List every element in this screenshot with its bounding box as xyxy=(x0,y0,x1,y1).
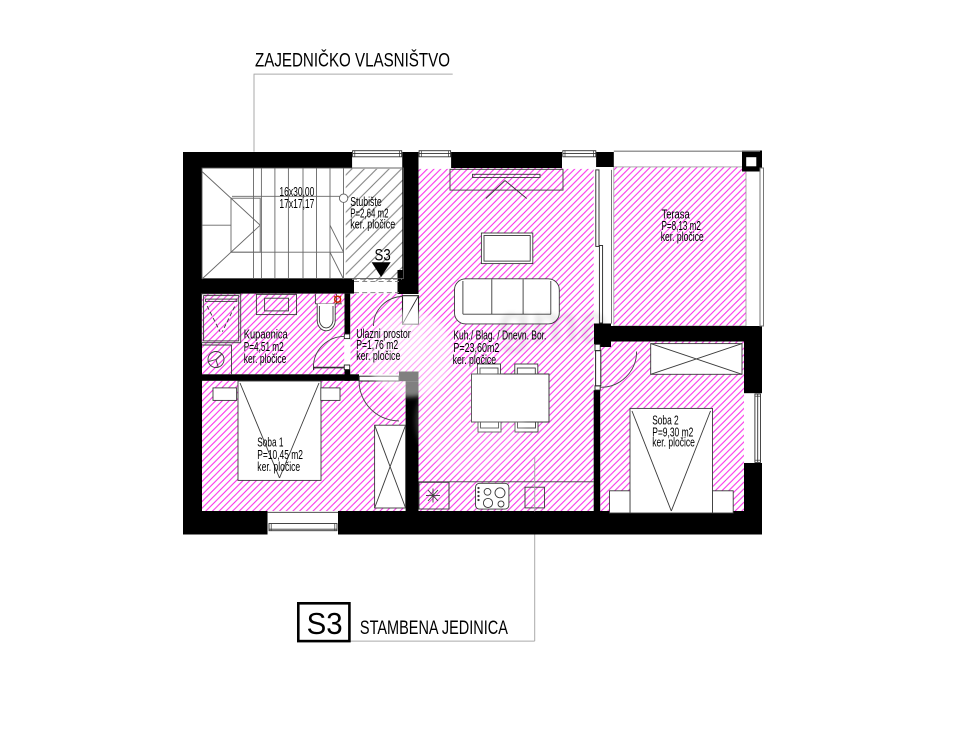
svg-text:ZAJEDNIČKO VLASNIŠTVO: ZAJEDNIČKO VLASNIŠTVO xyxy=(255,50,450,72)
svg-text:S3: S3 xyxy=(375,246,391,265)
svg-text:ker. pločice: ker. pločice xyxy=(661,230,704,244)
svg-text:ker. pločice: ker. pločice xyxy=(350,218,395,232)
svg-text:ker. pločice: ker. pločice xyxy=(244,352,287,366)
svg-text:gma: gma xyxy=(498,294,610,354)
svg-text:STAMBENA JEDINICA: STAMBENA JEDINICA xyxy=(360,617,508,639)
svg-text:17x17,17: 17x17,17 xyxy=(279,197,314,211)
svg-text:ker. pločice: ker. pločice xyxy=(257,460,300,474)
svg-text:ker. pločice: ker. pločice xyxy=(356,349,400,363)
svg-text:ker. pločice: ker. pločice xyxy=(652,436,695,450)
svg-text:S3: S3 xyxy=(307,606,343,641)
svg-text:ker. pločice: ker. pločice xyxy=(453,353,497,367)
